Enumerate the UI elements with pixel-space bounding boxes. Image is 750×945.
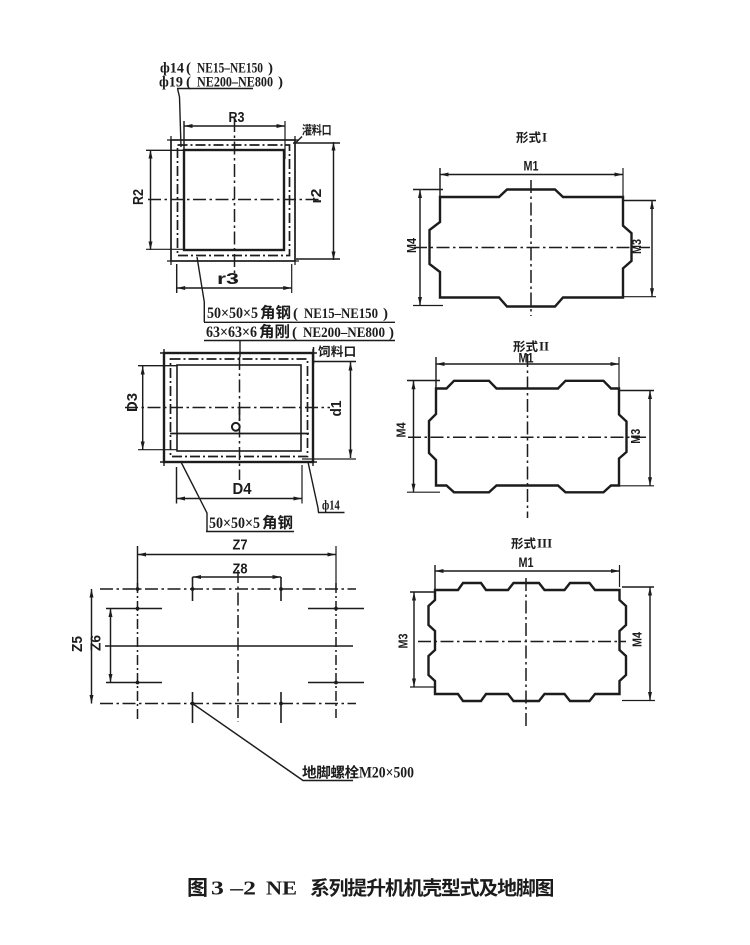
svg-text:r2: r2 [308, 189, 325, 204]
svg-text:M4: M4 [404, 237, 419, 253]
svg-text:M1: M1 [524, 158, 539, 174]
svg-text:NE200–NE800: NE200–NE800 [303, 325, 385, 341]
svg-text:): ) [389, 325, 394, 341]
svg-text:Z5: Z5 [70, 636, 86, 652]
svg-text:): ) [383, 306, 388, 322]
svg-text:R2: R2 [131, 189, 147, 205]
svg-text:M3: M3 [628, 429, 643, 444]
svg-text:D4: D4 [233, 481, 252, 498]
svg-text:50×50×5: 50×50×5 [207, 305, 258, 322]
svg-text:M3: M3 [629, 239, 644, 254]
svg-text:63×63×6: 63×63×6 [206, 324, 257, 341]
svg-text:3 –2: 3 –2 [211, 878, 256, 900]
svg-text:M1: M1 [519, 350, 534, 366]
svg-text:M4: M4 [394, 422, 409, 438]
svg-text:D3: D3 [124, 393, 141, 412]
svg-text:d1: d1 [328, 401, 345, 417]
svg-text:M20×500: M20×500 [359, 765, 414, 782]
svg-text:R3: R3 [229, 110, 245, 126]
svg-text:Z6: Z6 [89, 635, 105, 651]
svg-text:r3: r3 [217, 271, 239, 288]
svg-text:M3: M3 [396, 634, 411, 649]
svg-text:III: III [537, 536, 552, 551]
svg-text:(: ( [293, 306, 298, 322]
svg-text:NE: NE [266, 878, 297, 900]
svg-text:NE15–NE150: NE15–NE150 [304, 306, 378, 322]
svg-text:I: I [542, 130, 547, 145]
svg-text:M1: M1 [519, 554, 534, 570]
svg-text:ф14: ф14 [322, 497, 340, 513]
svg-text:Z7: Z7 [233, 538, 248, 554]
svg-text:): ) [278, 75, 283, 91]
svg-text:Z8: Z8 [233, 562, 248, 578]
svg-text:(: ( [292, 325, 297, 341]
svg-text:II: II [539, 339, 549, 354]
svg-text:M4: M4 [630, 631, 645, 647]
svg-text:50×50×5: 50×50×5 [209, 515, 260, 532]
